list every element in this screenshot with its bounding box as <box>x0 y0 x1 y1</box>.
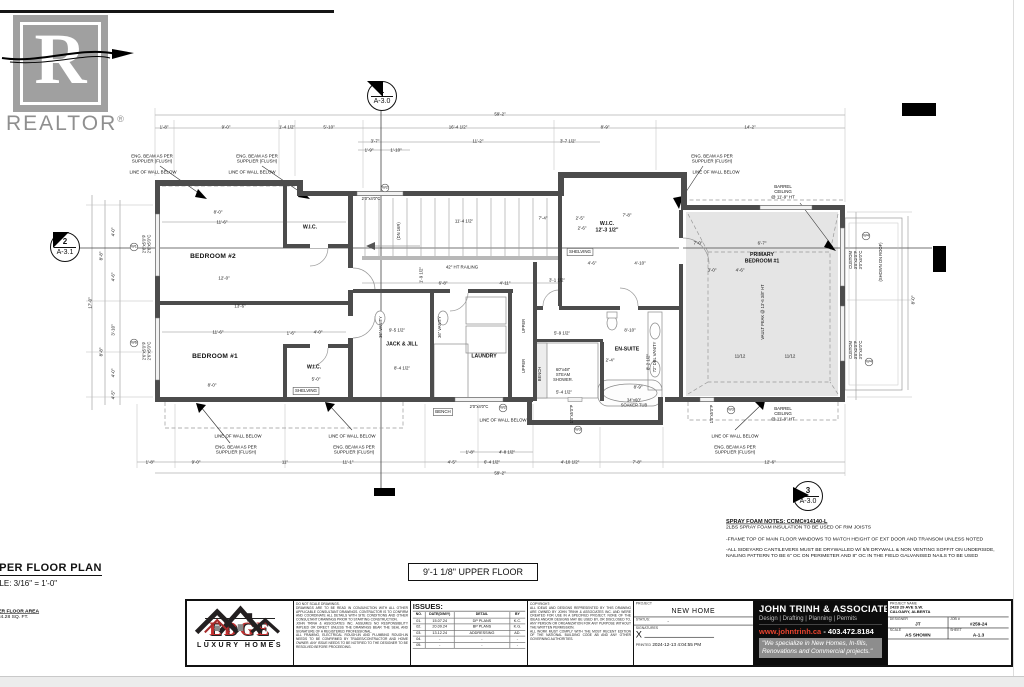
section-marker-2: 2 A-3.1 <box>50 232 80 262</box>
firm-phone: 403.472.8184 <box>828 627 874 636</box>
copyright-text: COPYRIGHT: ALL IDEAS AND DESIGNS REPRESE… <box>530 603 631 642</box>
elevation-box: 9'-1 1/8" UPPER FLOOR <box>408 563 538 581</box>
section-sheet: A-3.0 <box>368 97 396 107</box>
project-label: PROJECT <box>636 602 751 605</box>
note-line: 2LBS SPRAY FOAM INSULATION TO BE USED OF… <box>726 524 1011 530</box>
issue-row: 05.--- <box>413 642 525 648</box>
issues-title: ISSUES: <box>413 602 525 611</box>
signature-x: X <box>636 630 642 640</box>
status-label: STATUS: <box>636 618 650 623</box>
section-sheet: A-3.1 <box>51 248 79 258</box>
section-flag-icon <box>367 81 384 98</box>
note-line: -ALL SIDEYARD CANTILEVERS MUST BE DRYWAL… <box>726 547 1011 559</box>
scale-value: AS SHOWN <box>890 632 946 637</box>
sheet-edge <box>1013 0 1014 676</box>
floor-area-note: UPPER FLOOR AREA = 1084.28 SQ. FT. <box>0 608 174 619</box>
section-flag-icon <box>53 232 70 249</box>
realtor-logo: R <box>13 15 108 112</box>
printed-label: PRINTED <box>636 644 651 647</box>
status-value: - <box>667 618 669 623</box>
note-line: -FRAME TOP OF MAIN FLOOR WINDOWS TO MATC… <box>726 536 1011 542</box>
spray-foam-notes: SPRAY FOAM NOTES: CCMC#14140-L 2LBS SPRA… <box>726 518 1012 591</box>
firm-tagline: Design | Drafting | Planning | Permits <box>759 616 882 625</box>
firm-quote: "We specialize in New Homes, In-fills, R… <box>759 638 882 658</box>
roofline-icon <box>187 601 283 635</box>
project-name: NEW HOME <box>636 607 751 615</box>
drawing-sheet: 59'-2"1'-8"9'-0"1'-4 1/2"5'-10"16'-4 1/2… <box>0 0 1024 686</box>
issues-panel: ISSUES: NO. DATE(D/M/Y) DETAIL BY 01.15.… <box>411 601 528 665</box>
firm-website: www.johntrinh.ca <box>759 627 821 636</box>
section-flag-icon <box>793 487 810 504</box>
edge-logo-tagline: LUXURY HOMES <box>197 642 283 649</box>
bottom-strip <box>0 676 1024 687</box>
project-address2: CALGARY, ALBERTA <box>890 611 1007 616</box>
job-number: #259-24 <box>950 621 1007 626</box>
project-panel: PROJECT NEW HOME STATUS: - SIGNATURES X … <box>634 601 754 665</box>
disclaimer-text: DO NOT SCALE DRAWINGS. DRAWINGS ARE TO B… <box>296 603 408 650</box>
section-marker-1: 1 A-3.0 <box>367 81 397 111</box>
floor-area-value: = 1084.28 SQ. FT. <box>0 614 174 620</box>
realtor-r-icon: R <box>13 11 108 108</box>
section-marker-3: 3 A-3.0 <box>793 481 823 511</box>
sheet-number: A-1.3 <box>950 632 1007 637</box>
sheet-info-panel: PROJECT NAME 2428 29 AVE S.W. CALGARY, A… <box>888 601 1009 665</box>
title-block: EDGE LUXURY HOMES DO NOT SCALE DRAWINGS.… <box>185 599 1013 667</box>
issues-rows: 01.15.07.24DP PLANSK.C.02.20.09.24BP PLA… <box>413 618 525 648</box>
printed-timestamp: 2024-12-13 4:04:55 PM <box>652 642 701 647</box>
realtor-wordmark: REALTOR® <box>6 112 126 136</box>
floor-plan-linework <box>0 0 1024 560</box>
floor-plan-scale: SCALE: 3/16" = 1'-0" <box>0 579 57 588</box>
firm-panel: JOHN TRINH & ASSOCIATES Design | Draftin… <box>754 601 888 665</box>
floor-plan-title: UPPER FLOOR PLAN <box>0 562 102 576</box>
disclaimer-panel: DO NOT SCALE DRAWINGS. DRAWINGS ARE TO B… <box>294 601 411 665</box>
designer-value: JT <box>890 621 946 626</box>
builder-logo: EDGE LUXURY HOMES <box>187 601 294 665</box>
copyright-panel: COPYRIGHT: ALL IDEAS AND DESIGNS REPRESE… <box>528 601 634 665</box>
